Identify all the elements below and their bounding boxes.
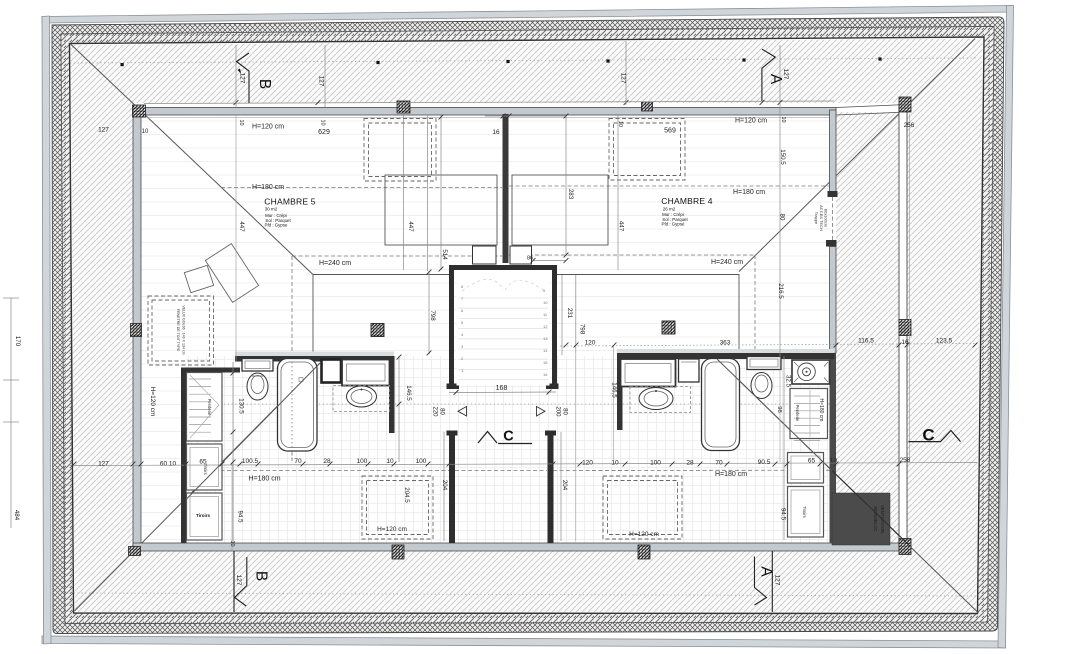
svg-text:65: 65 (199, 459, 207, 466)
svg-text:80: 80 (562, 408, 568, 415)
svg-text:447: 447 (238, 221, 245, 232)
svg-text:127: 127 (774, 575, 781, 586)
svg-text:Pfd : Gypse: Pfd : Gypse (265, 223, 288, 228)
svg-text:120: 120 (582, 460, 593, 467)
svg-text:10: 10 (780, 116, 786, 122)
svg-text:100.5: 100.5 (242, 458, 259, 465)
svg-text:86: 86 (527, 256, 533, 262)
svg-text:10: 10 (386, 458, 394, 465)
svg-text:30 m2: 30 m2 (265, 207, 278, 212)
svg-text:123,5: 123,5 (936, 338, 953, 345)
svg-text:C: C (503, 429, 514, 445)
svg-text:15: 15 (543, 360, 548, 365)
svg-text:100: 100 (357, 458, 368, 465)
svg-text:127: 127 (98, 461, 109, 468)
svg-text:13: 13 (543, 336, 548, 341)
svg-text:H=180 cm: H=180 cm (252, 184, 284, 191)
svg-text:120: 120 (585, 340, 596, 347)
svg-text:220: 220 (432, 406, 438, 417)
svg-text:CHAMBRE 5: CHAMBRE 5 (264, 197, 315, 207)
svg-text:146.5: 146.5 (405, 385, 412, 401)
svg-text:H=180 cm: H=180 cm (733, 189, 765, 196)
svg-text:H=120 cm: H=120 cm (629, 531, 659, 538)
svg-text:116,5: 116,5 (858, 338, 874, 345)
svg-text:100: 100 (416, 458, 427, 465)
svg-text:10: 10 (229, 540, 235, 546)
svg-text:798: 798 (579, 324, 586, 335)
svg-text:10: 10 (543, 300, 548, 305)
svg-text:258: 258 (900, 457, 911, 464)
svg-text:12: 12 (543, 324, 548, 329)
svg-text:16: 16 (492, 129, 500, 136)
svg-text:798: 798 (429, 310, 436, 321)
svg-text:70: 70 (715, 460, 723, 467)
svg-text:16: 16 (901, 339, 909, 346)
svg-text:Trappe: Trappe (814, 212, 819, 225)
svg-text:26 m2: 26 m2 (663, 207, 676, 212)
svg-text:Pfd : Gypsé: Pfd : Gypsé (662, 222, 685, 227)
svg-text:127: 127 (620, 73, 627, 84)
svg-text:204.5: 204.5 (403, 487, 410, 503)
svg-text:10: 10 (830, 458, 838, 465)
svg-text:10: 10 (142, 129, 149, 135)
svg-text:150.5: 150.5 (779, 149, 786, 165)
svg-text:H=120 cm: H=120 cm (252, 124, 284, 131)
svg-text:256: 256 (904, 122, 915, 129)
svg-text:70: 70 (294, 458, 302, 465)
svg-text:447: 447 (407, 221, 414, 232)
svg-text:B: B (253, 571, 270, 581)
svg-text:484: 484 (13, 510, 20, 521)
svg-text:CHAMBRE 4: CHAMBRE 4 (661, 196, 712, 206)
svg-text:VELUX GGL06 : 140 X 134 cm: VELUX GGL06 : 140 X 134 cm (182, 305, 186, 355)
svg-text:231: 231 (566, 308, 573, 319)
svg-text:127: 127 (98, 127, 109, 134)
svg-text:94.5: 94.5 (780, 508, 787, 521)
svg-text:H=120 cm: H=120 cm (735, 118, 767, 125)
svg-text:H=240 cm: H=240 cm (711, 259, 743, 266)
svg-text:H=120 cm: H=120 cm (149, 387, 156, 417)
svg-text:65: 65 (808, 458, 816, 465)
svg-text:H=180 cm: H=180 cm (248, 476, 280, 483)
svg-text:363: 363 (720, 340, 731, 347)
svg-text:28: 28 (323, 458, 331, 465)
svg-text:127: 127 (782, 69, 789, 80)
svg-text:C: C (922, 426, 934, 445)
svg-text:629: 629 (318, 129, 330, 136)
svg-text:127: 127 (318, 76, 325, 87)
svg-text:168: 168 (496, 385, 508, 392)
svg-text:94.5: 94.5 (237, 510, 244, 523)
svg-text:283: 283 (567, 189, 574, 200)
svg-text:H=180 cm: H=180 cm (818, 399, 824, 422)
svg-text:32.5: 32.5 (785, 375, 792, 388)
svg-text:200: 200 (555, 406, 561, 417)
svg-text:Tiroirs: Tiroirs (196, 513, 210, 518)
svg-text:98: 98 (776, 406, 782, 412)
svg-text:ACCES TECH: ACCES TECH (819, 205, 824, 231)
svg-text:170: 170 (14, 336, 21, 347)
svg-text:FENETRE DE TOIT TYPE: FENETRE DE TOIT TYPE (176, 309, 180, 352)
svg-text:Penderie: Penderie (207, 399, 212, 416)
svg-text:10: 10 (611, 460, 619, 467)
svg-text:130.5: 130.5 (238, 398, 245, 414)
svg-text:80x100cm: 80x100cm (824, 209, 829, 228)
svg-text:60 10: 60 10 (160, 461, 177, 468)
svg-text:514: 514 (441, 249, 448, 260)
svg-text:80: 80 (439, 408, 445, 415)
svg-text:Tiroirs: Tiroirs (802, 506, 807, 517)
svg-text:447: 447 (618, 221, 625, 232)
svg-text:Penderie: Penderie (795, 405, 800, 422)
svg-text:90.5: 90.5 (758, 459, 771, 466)
svg-text:14: 14 (543, 348, 548, 353)
svg-text:10: 10 (617, 121, 623, 127)
svg-text:H=120 cm: H=120 cm (377, 526, 407, 533)
svg-text:216.5: 216.5 (777, 283, 784, 299)
svg-text:10: 10 (238, 119, 244, 125)
svg-text:127: 127 (235, 575, 242, 586)
svg-text:H=180 cm: H=180 cm (715, 471, 747, 478)
svg-text:H=240 cm: H=240 cm (319, 260, 351, 267)
svg-text:16: 16 (543, 372, 548, 377)
svg-text:204: 204 (561, 480, 568, 491)
svg-text:146,5: 146,5 (611, 382, 618, 398)
svg-text:80: 80 (779, 214, 786, 221)
svg-text:10: 10 (320, 119, 326, 125)
svg-text:100: 100 (650, 460, 661, 467)
svg-text:A: A (767, 74, 784, 85)
svg-text:B: B (256, 79, 273, 89)
svg-text:569: 569 (664, 128, 676, 135)
svg-text:127: 127 (239, 73, 246, 84)
svg-text:A: A (758, 566, 775, 577)
svg-text:28: 28 (686, 460, 694, 467)
svg-text:204: 204 (441, 480, 448, 491)
